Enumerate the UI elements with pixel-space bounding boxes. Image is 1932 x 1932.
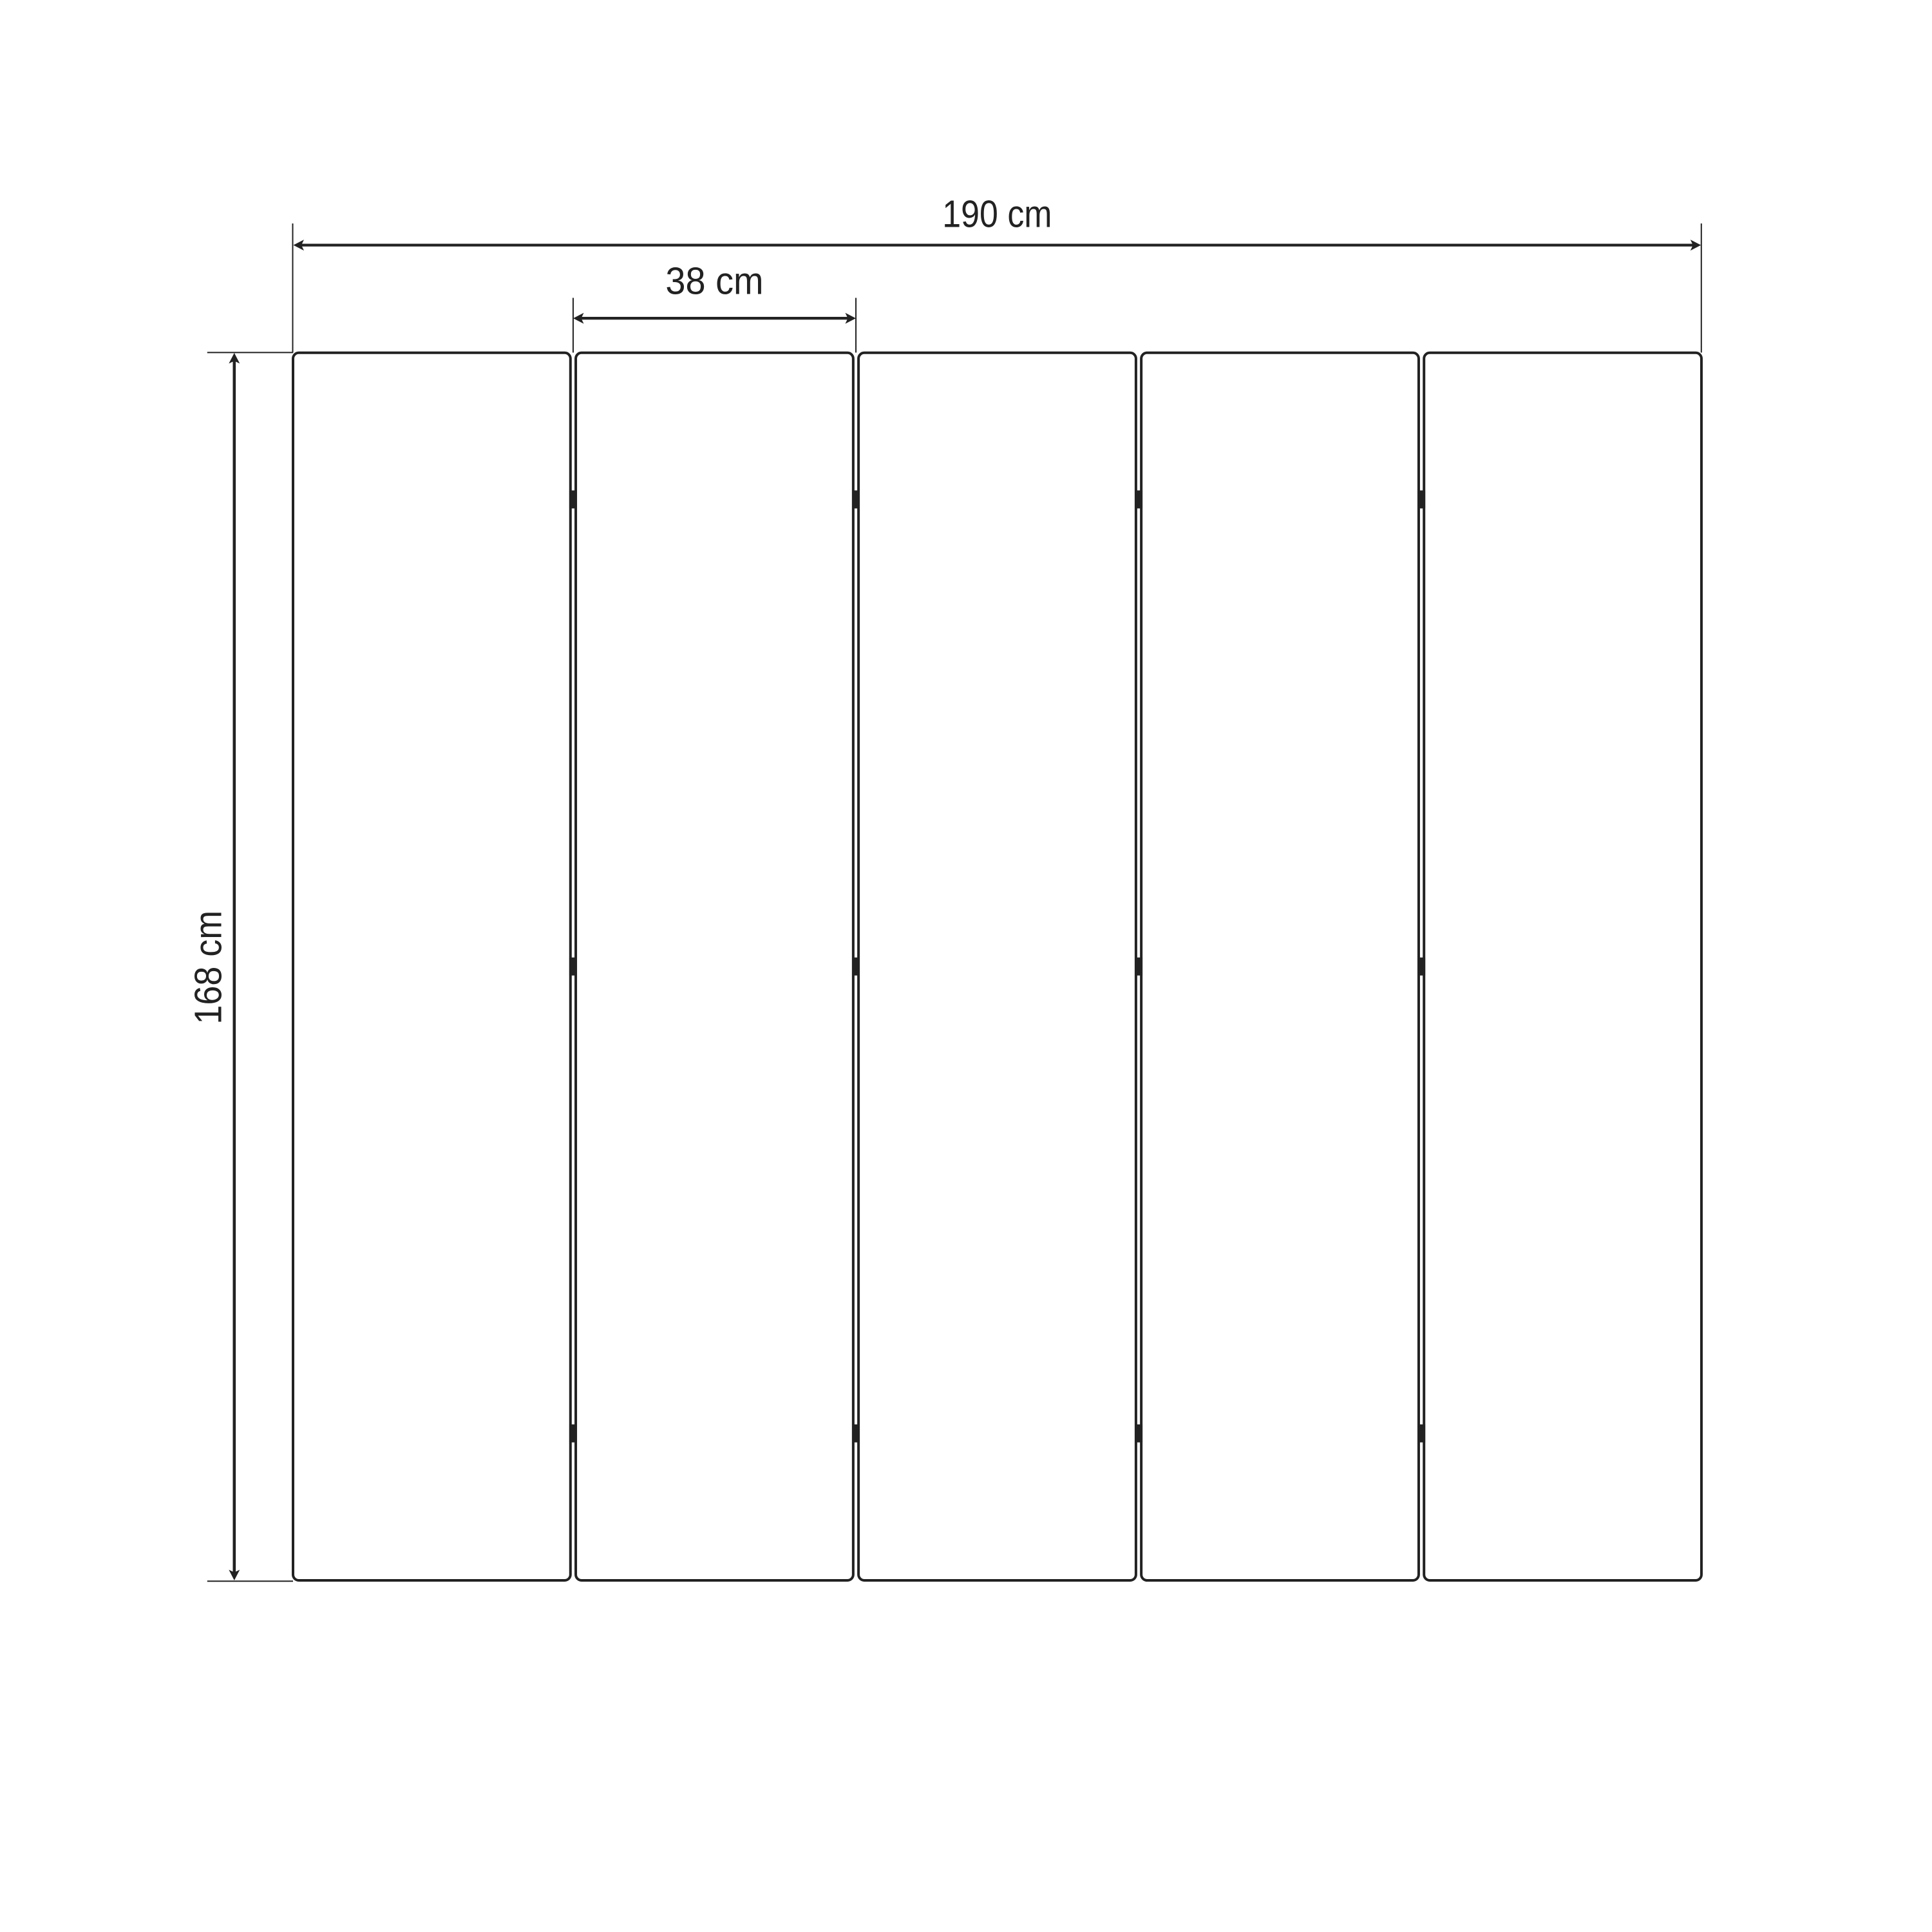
svg-text:168 cm: 168 cm: [187, 911, 230, 1025]
svg-text:190 cm: 190 cm: [942, 193, 1052, 236]
svg-text:38 cm: 38 cm: [665, 260, 763, 303]
